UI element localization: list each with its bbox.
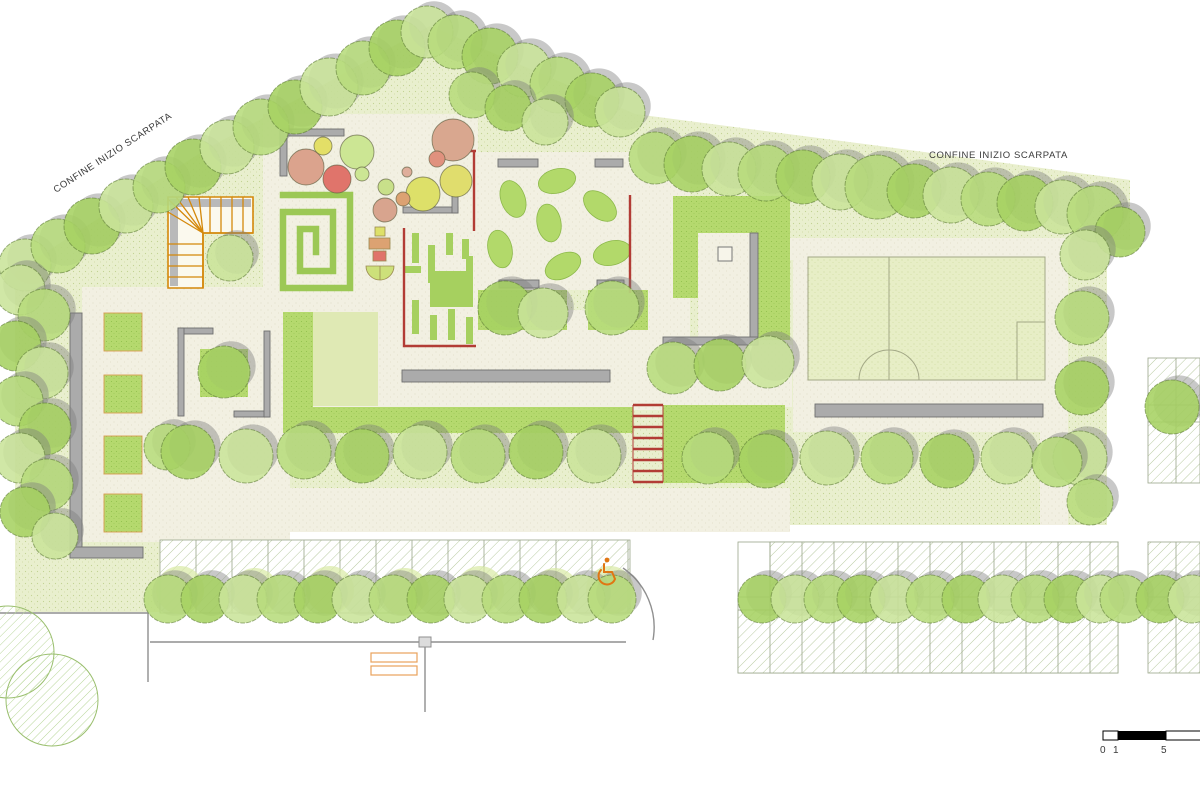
- picnic-tables: [371, 653, 417, 675]
- scale-tick-1: 1: [1113, 745, 1119, 756]
- long-bench: [402, 370, 610, 382]
- boundary-label-right: CONFINE INIZIO SCARPATA: [929, 150, 1068, 161]
- lawn-square: [313, 312, 378, 406]
- gate-post: [419, 637, 431, 647]
- soccer-field: [808, 257, 1045, 380]
- long-bench-east: [815, 404, 1043, 417]
- scale-bar: 0 1 5: [1100, 731, 1200, 756]
- plinth: [718, 247, 732, 261]
- site-plan-drawing: CONFINE INIZIO SCARPATA CONFINE INIZIO S…: [0, 0, 1200, 800]
- site-plan-canvas: CONFINE INIZIO SCARPATA CONFINE INIZIO S…: [0, 0, 1200, 800]
- scale-tick-5: 5: [1161, 745, 1167, 756]
- outline-trees: [0, 606, 98, 746]
- scale-tick-0: 0: [1100, 745, 1106, 756]
